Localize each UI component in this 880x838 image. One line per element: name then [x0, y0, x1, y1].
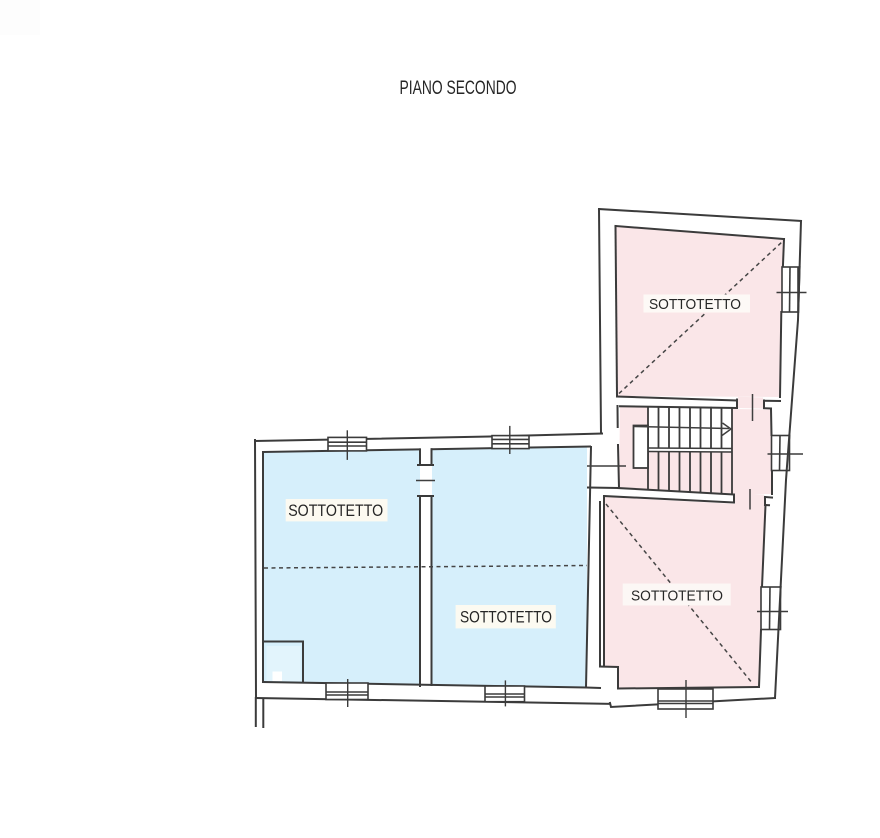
svg-text:SOTTOTETTO: SOTTOTETTO	[288, 501, 383, 520]
svg-text:SOTTOTETTO: SOTTOTETTO	[649, 296, 741, 313]
svg-text:SOTTOTETTO: SOTTOTETTO	[460, 608, 552, 627]
svg-text:SOTTOTETTO: SOTTOTETTO	[631, 588, 723, 605]
svg-text:PIANO SECONDO: PIANO SECONDO	[400, 78, 517, 99]
